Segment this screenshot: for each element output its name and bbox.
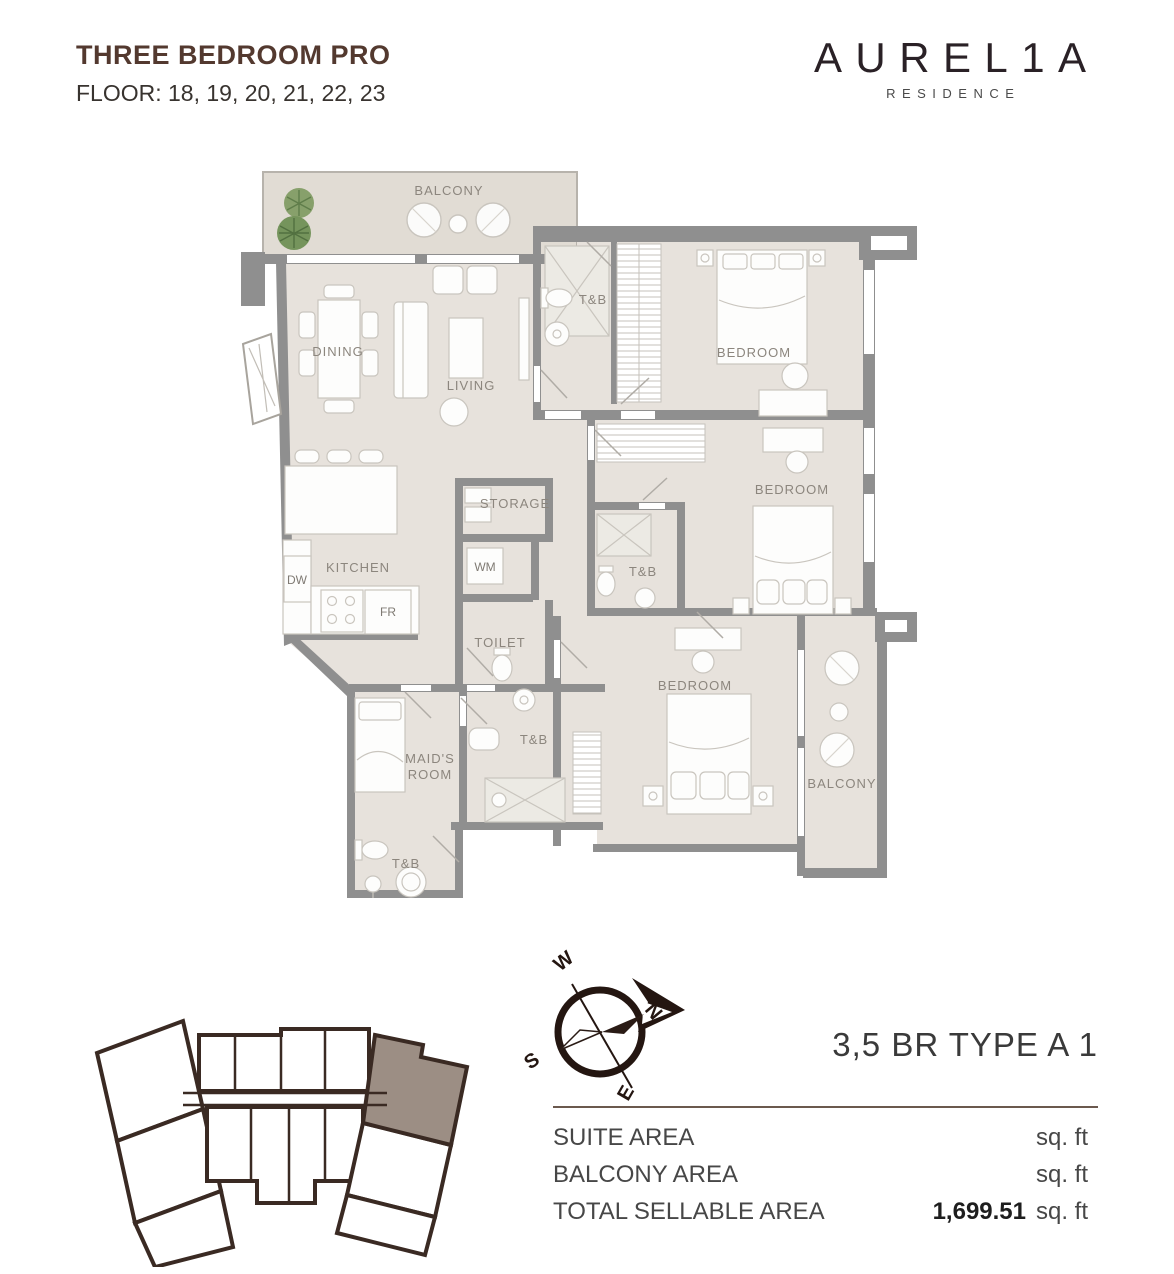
compass-e: E [613, 1082, 639, 1105]
area-unit: sq. ft [1036, 1161, 1098, 1189]
divider-rule [553, 1106, 1098, 1108]
label-tb-inner: T&B [520, 732, 548, 747]
label-living: LIVING [447, 378, 496, 393]
compass-w: W [550, 947, 579, 976]
table-row: TOTAL SELLABLE AREA 1,699.51 sq. ft [553, 1198, 1098, 1235]
label-bedroom-bottom: BEDROOM [658, 678, 732, 693]
table-row: BALCONY AREA sq. ft [553, 1161, 1098, 1198]
floorplan: BALCONY T&B BEDROOM DINING LIVING STORAG… [237, 150, 937, 960]
label-balcony-top: BALCONY [414, 183, 483, 198]
label-toilet: TOILET [474, 635, 525, 650]
compass-s: S [520, 1048, 544, 1074]
area-unit: sq. ft [1036, 1124, 1098, 1152]
label-kitchen: KITCHEN [326, 560, 390, 575]
keyplan [75, 995, 495, 1267]
label-bedroom-mid: BEDROOM [755, 482, 829, 497]
balcony-table [449, 215, 467, 233]
area-label: BALCONY AREA [553, 1161, 738, 1189]
shaft [243, 334, 281, 424]
label-fr: FR [380, 605, 396, 619]
brand-name: AUREL1A [800, 34, 1100, 82]
label-wm: WM [474, 560, 495, 574]
label-tb-bottom: T&B [392, 856, 420, 871]
label-maids-2: ROOM [408, 767, 452, 782]
label-bedroom-top: BEDROOM [717, 345, 791, 360]
label-tb-top: T&B [579, 292, 607, 307]
keyplan-unit [207, 1107, 363, 1203]
area-label: SUITE AREA [553, 1124, 694, 1152]
label-storage: STORAGE [480, 496, 550, 511]
area-value: 1,699.51 [933, 1198, 1036, 1226]
label-balcony-bottom: BALCONY [807, 776, 876, 791]
unit-type-label: 3,5 BR TYPE A 1 [553, 1026, 1098, 1064]
label-maids-1: MAID'S [405, 751, 455, 766]
label-tb-mid: T&B [629, 564, 657, 579]
floor-list: FLOOR: 18, 19, 20, 21, 22, 23 [76, 80, 385, 107]
page-title: THREE BEDROOM PRO [76, 40, 391, 71]
area-label: TOTAL SELLABLE AREA [553, 1198, 825, 1226]
keyplan-unit [199, 1029, 369, 1091]
label-dining: DINING [312, 344, 364, 359]
keyplan-highlighted-unit [363, 1035, 467, 1145]
table-row: SUITE AREA sq. ft [553, 1124, 1098, 1161]
brand-subtitle: RESIDENCE [800, 86, 1100, 101]
brand-logo: AUREL1A RESIDENCE [800, 34, 1100, 101]
area-table: SUITE AREA sq. ft BALCONY AREA sq. ft TO… [553, 1124, 1098, 1235]
label-dw: DW [287, 573, 308, 587]
area-unit: sq. ft [1036, 1198, 1098, 1226]
